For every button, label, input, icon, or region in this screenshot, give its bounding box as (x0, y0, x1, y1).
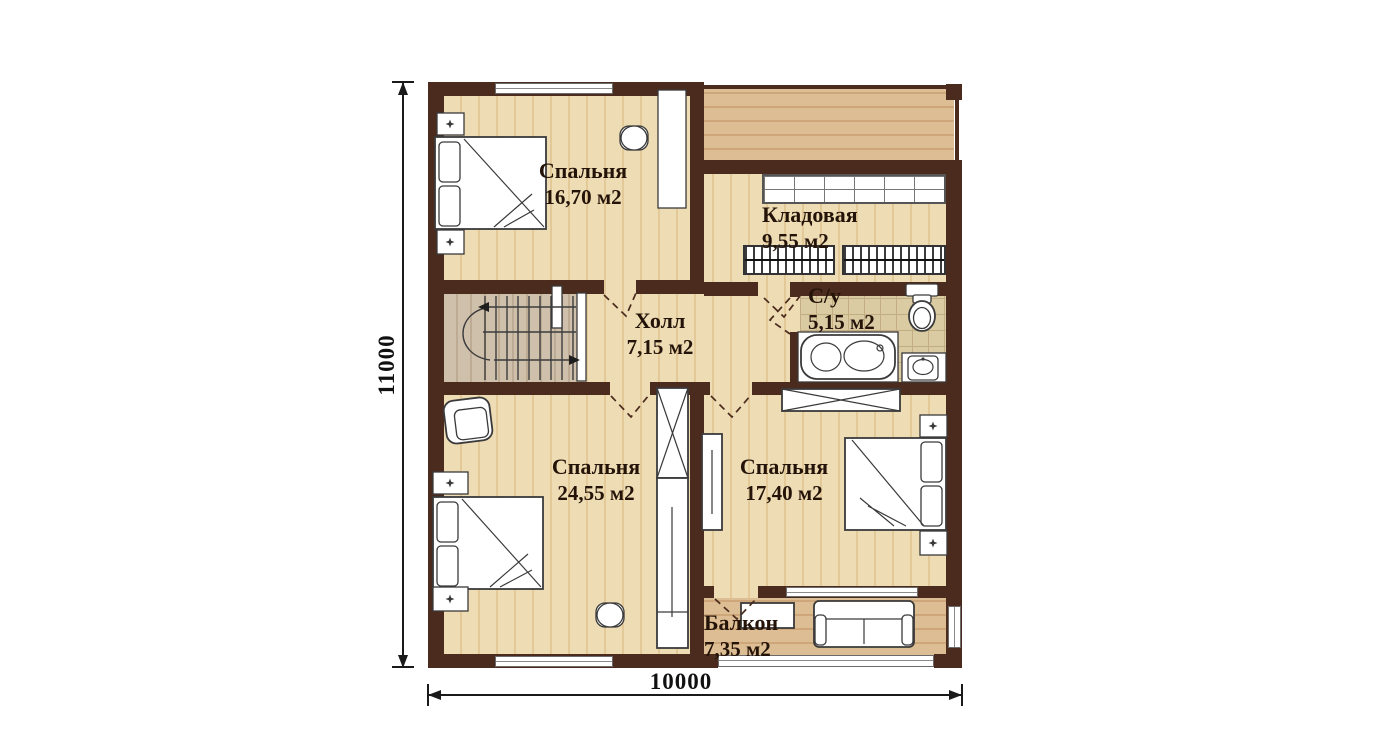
room-area: 7,35 м2 (704, 637, 778, 663)
dimension-width-value: 10000 (616, 669, 746, 695)
door-swing-bathroom (770, 298, 790, 334)
staircase (463, 286, 586, 381)
dimension-arrow-down (398, 655, 408, 668)
nightstand (433, 587, 468, 611)
armchair (443, 396, 494, 444)
door-swing-bedroom3 (711, 395, 751, 417)
room-area: 24,55 м2 (508, 481, 684, 507)
dimension-arrow-left (428, 690, 441, 700)
room-name: Холл (635, 308, 686, 333)
dimension-arrow-right (949, 690, 962, 700)
room-area: 9,55 м2 (762, 229, 858, 255)
dimension-line-vertical (402, 82, 404, 668)
bathtub (798, 332, 898, 382)
stairs-balustrade (577, 293, 586, 381)
room-area: 17,40 м2 (706, 481, 862, 507)
room-name: С/у (808, 283, 841, 308)
door-swing-storage (764, 296, 800, 317)
room-area: 7,15 м2 (596, 335, 724, 361)
nightstand (920, 415, 947, 437)
room-name: Спальня (539, 158, 627, 183)
floor-plan: Спальня 16,70 м2 Кладовая 9,55 м2 Холл 7… (428, 82, 962, 668)
bed-double (433, 497, 543, 589)
room-area: 16,70 м2 (498, 185, 668, 211)
room-label-balcony: Балкон 7,35 м2 (704, 610, 778, 662)
room-name: Спальня (740, 454, 828, 479)
room-label-hall: Холл 7,15 м2 (596, 308, 724, 360)
room-label-bedroom-bottom-left: Спальня 24,55 м2 (508, 454, 684, 506)
room-name: Кладовая (762, 202, 858, 227)
room-label-bathroom: С/у 5,15 м2 (808, 283, 875, 335)
sofa (814, 601, 914, 647)
desk-chair (620, 126, 648, 150)
sink (902, 353, 946, 382)
desk-chair (596, 603, 624, 627)
room-name: Балкон (704, 610, 778, 635)
room-area: 5,15 м2 (808, 310, 875, 336)
room-label-bedroom-bottom-right: Спальня 17,40 м2 (706, 454, 862, 506)
door-swing-bedroom2 (611, 395, 649, 417)
wardrobe-x (782, 389, 900, 411)
nightstand (920, 531, 947, 555)
room-name: Спальня (552, 454, 640, 479)
room-label-bedroom-top-left: Спальня 16,70 м2 (498, 158, 668, 210)
dimension-arrow-up (398, 82, 408, 95)
room-label-storage: Кладовая 9,55 м2 (762, 202, 858, 254)
nightstand (437, 113, 464, 135)
nightstand (437, 230, 464, 254)
dimension-height-value: 11000 (374, 329, 400, 401)
toilet (906, 284, 938, 331)
floor-plan-page: Спальня 16,70 м2 Кладовая 9,55 м2 Холл 7… (0, 0, 1392, 752)
nightstand (433, 472, 468, 494)
